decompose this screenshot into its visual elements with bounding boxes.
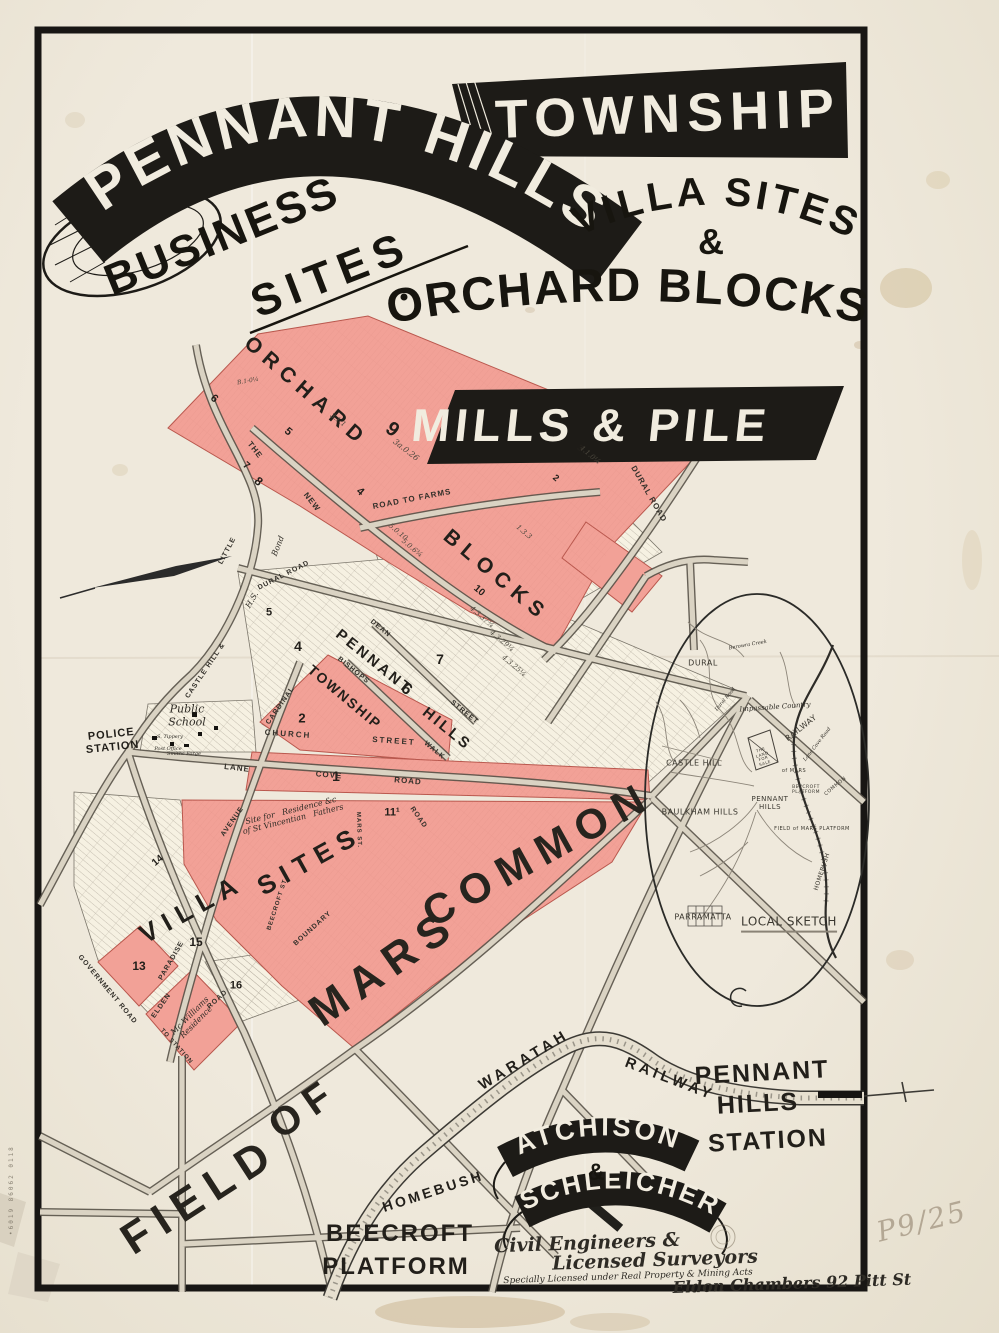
title-art: PENNANT HILLS TOWNSHIP VILLA SITES & ORC… [30,62,874,464]
seal-stamp-icon [711,1225,735,1249]
station-dash [818,1091,862,1098]
north-arrow-icon [60,556,232,598]
edge-stamp: •6019 86062 0118 [8,1221,15,1235]
agency-name-text: MILLS & PILE [409,399,773,451]
villa-ampersand: & [698,221,724,262]
poster-sheet: PENNANT HILLS TOWNSHIP VILLA SITES & ORC… [0,0,999,1333]
township-text: TOWNSHIP [494,78,842,150]
map-artwork: PENNANT HILLS TOWNSHIP VILLA SITES & ORC… [0,0,999,1333]
orchard-blocks-header-text: ORCHARD BLOCKS [382,258,874,333]
